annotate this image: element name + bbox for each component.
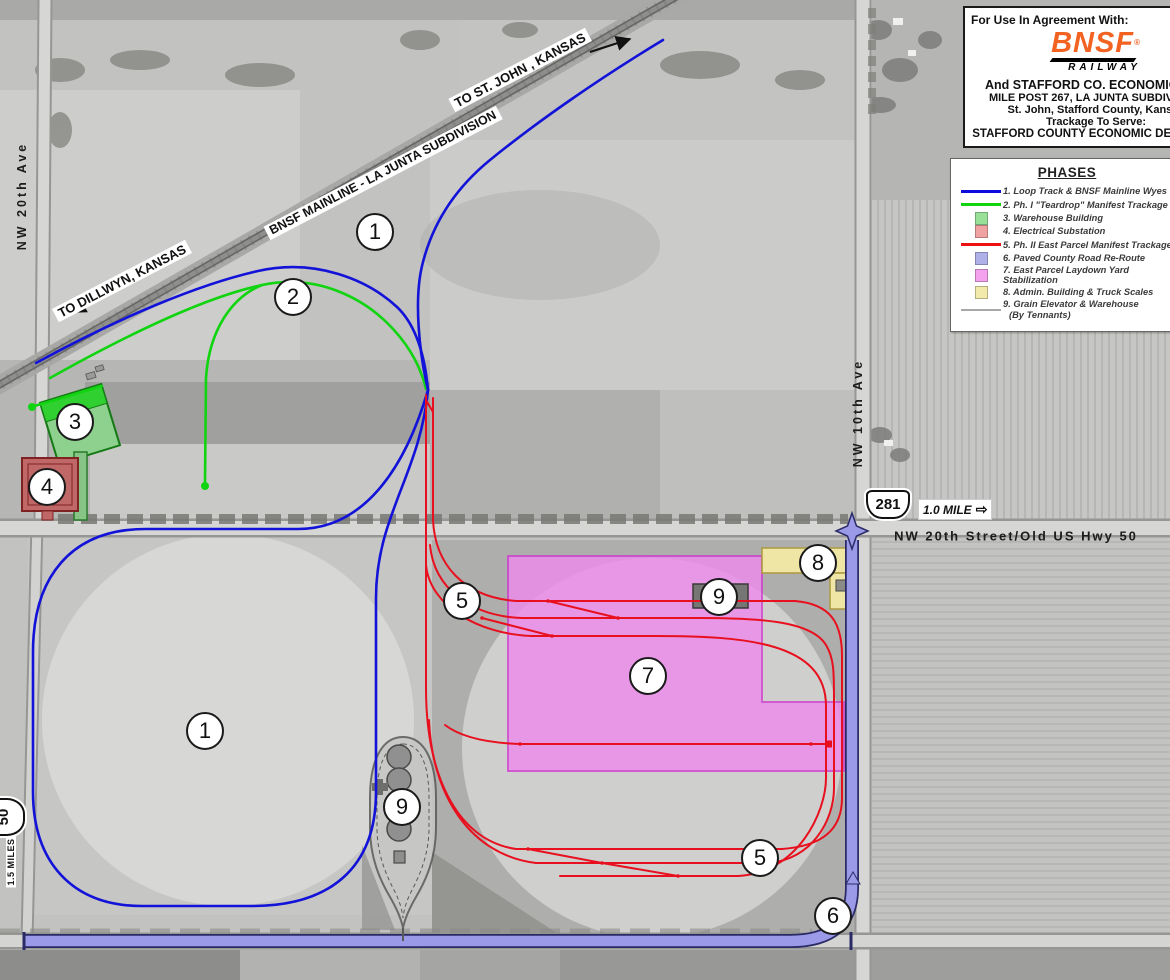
legend-item: 3. Warehouse Building (959, 212, 1170, 225)
legend-title: PHASES (959, 165, 1170, 180)
phase-marker-8: 8 (799, 544, 837, 582)
title-block-line: St. John, Stafford County, Kansas (971, 104, 1170, 116)
phase-marker-5: 5 (741, 839, 779, 877)
title-block-line: STAFFORD COUNTY ECONOMIC DEVELOPM (971, 128, 1170, 140)
title-block-heading: For Use In Agreement With: (971, 13, 1170, 27)
legend-line-swatch (959, 203, 1003, 206)
phase-marker-7: 7 (629, 657, 667, 695)
phase-marker-9: 9 (700, 578, 738, 616)
legend-item: 2. Ph. I "Teardrop" Manifest Trackage (959, 198, 1170, 211)
phases-legend: PHASES 1. Loop Track & BNSF Mainline Wye… (950, 158, 1170, 332)
legend-square-swatch (959, 269, 1003, 282)
legend-item-label: 7. East Parcel Laydown Yard Stabilizatio… (1003, 265, 1170, 286)
label-nw-10th-ave: NW 10th Ave (851, 359, 865, 467)
phase-marker-9: 9 (383, 788, 421, 826)
legend-item: 8. Admin. Building & Truck Scales (959, 286, 1170, 299)
phase-marker-6: 6 (814, 897, 852, 935)
route-281-shield: 281 (866, 490, 910, 519)
legend-item: 1. Loop Track & BNSF Mainline Wyes (959, 185, 1170, 198)
legend-line-swatch (959, 309, 1003, 311)
legend-item-label: 6. Paved County Road Re-Route (1003, 253, 1145, 264)
legend-item-label: 9. Grain Elevator & Warehouse(By Tennant… (1003, 299, 1139, 320)
legend-square-swatch (959, 212, 1003, 225)
legend-line-swatch (959, 190, 1003, 193)
legend-line-swatch (959, 243, 1003, 246)
legend-item-label: 8. Admin. Building & Truck Scales (1003, 287, 1153, 298)
legend-square-swatch (959, 286, 1003, 299)
legend-square-swatch (959, 252, 1003, 265)
legend-item-label: 5. Ph. II East Parcel Manifest Trackage (1003, 240, 1170, 251)
title-block-line: Trackage To Serve: (971, 116, 1170, 128)
phase-marker-4: 4 (28, 468, 66, 506)
one-mile-label: 1.0 MILE ⇨ (918, 499, 992, 520)
one-mile-text: 1.0 MILE (923, 503, 972, 517)
site-plan-map: TO ST. JOHN , KANSAS BNSF MAINLINE - LA … (0, 0, 1170, 980)
title-block-line: And STAFFORD CO. ECONOMIC DEV (971, 78, 1170, 92)
label-1-5-miles: 1.5 MILES (6, 836, 16, 887)
phase-marker-5: 5 (443, 582, 481, 620)
legend-item: 9. Grain Elevator & Warehouse(By Tennant… (959, 299, 1170, 320)
title-block: For Use In Agreement With: BNSF® RAILWAY… (963, 6, 1170, 148)
phase-marker-1: 1 (356, 213, 394, 251)
bnsf-logo: BNSF® RAILWAY (1051, 30, 1141, 73)
legend-item: 6. Paved County Road Re-Route (959, 251, 1170, 264)
legend-items: 1. Loop Track & BNSF Mainline Wyes2. Ph.… (959, 185, 1170, 320)
bnsf-logo-swoosh (1050, 58, 1137, 62)
title-block-lines: And STAFFORD CO. ECONOMIC DEVMILE POST 2… (971, 78, 1170, 140)
legend-item: 5. Ph. II East Parcel Manifest Trackage (959, 238, 1170, 251)
legend-square-swatch (959, 225, 1003, 238)
legend-item-label: 4. Electrical Substation (1003, 226, 1105, 237)
phase-marker-2: 2 (274, 278, 312, 316)
bnsf-logo-railway: RAILWAY (1051, 63, 1141, 73)
title-block-line: MILE POST 267, LA JUNTA SUBDIVISION (971, 92, 1170, 104)
right-arrow-icon: ⇨ (976, 501, 988, 518)
label-nw-20th-street: NW 20th Street/Old US Hwy 50 (894, 529, 1138, 544)
legend-item: 4. Electrical Substation (959, 225, 1170, 238)
phase-marker-1: 1 (186, 712, 224, 750)
legend-item-label: 1. Loop Track & BNSF Mainline Wyes (1003, 186, 1167, 197)
legend-item-label: 2. Ph. I "Teardrop" Manifest Trackage (1003, 200, 1168, 211)
legend-item-label: 3. Warehouse Building (1003, 213, 1103, 224)
legend-item: 7. East Parcel Laydown Yard Stabilizatio… (959, 265, 1170, 286)
label-nw-20th-ave: NW 20th Ave (15, 142, 29, 250)
phase-marker-3: 3 (56, 403, 94, 441)
bnsf-logo-text: BNSF® (1051, 30, 1141, 56)
